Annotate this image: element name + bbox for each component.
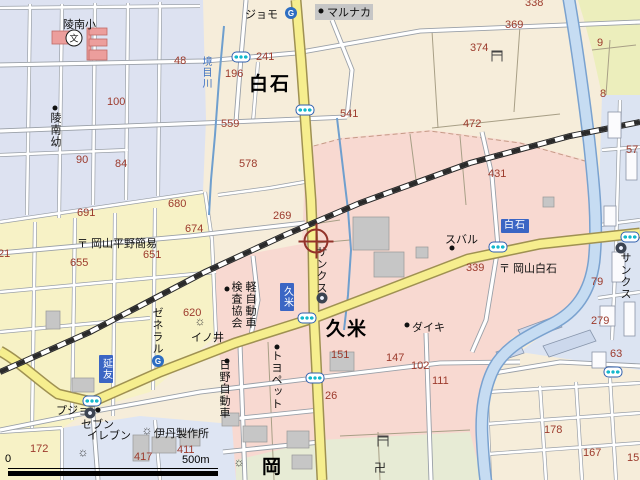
map-viewport[interactable]: 4810090842411965595413383693749847257691… (0, 0, 640, 480)
road-number-label: 655 (70, 257, 88, 269)
factory-icon: ☼ (232, 455, 246, 469)
traffic-signal-icon (232, 52, 251, 63)
road-number-label: 541 (340, 108, 358, 120)
road-number-label: 111 (432, 375, 449, 387)
map-cursor-icon (304, 229, 329, 254)
scale-bar (8, 471, 218, 476)
gas-station-icon: G (285, 7, 297, 19)
shrine-icon (492, 51, 503, 62)
scale-line (8, 468, 218, 469)
road-number-label: 167 (583, 447, 601, 459)
poi-label: ゼネラル (149, 307, 165, 355)
traffic-signal-icon (83, 396, 102, 407)
road-number-label: 674 (185, 223, 203, 235)
road-number-label: 57 (626, 144, 638, 156)
bus-stop-label: 延友 (99, 355, 113, 383)
road-number-label: 100 (107, 96, 125, 108)
poi-dot-icon (405, 323, 410, 328)
road-number-label: 339 (466, 262, 484, 274)
poi-label: ダイキ (412, 319, 445, 335)
poi-label: 日野自動車 (216, 359, 232, 419)
road-number-label: 559 (221, 118, 239, 130)
poi-dot-icon (319, 9, 324, 14)
road-number-label: 431 (488, 168, 506, 180)
traffic-signal-icon (604, 367, 623, 378)
poi-label: ジョモ (245, 6, 278, 22)
road-number-label: 374 (470, 42, 488, 54)
road-number-label: 26 (325, 390, 337, 402)
road-number-label: 269 (273, 210, 291, 222)
traffic-signal-icon (298, 313, 317, 324)
traffic-signal-icon (306, 373, 325, 384)
road-number-label: 578 (239, 158, 257, 170)
road-number-label: 417 (134, 451, 152, 463)
road-number-label: 21 (0, 248, 10, 260)
poi-label: サンクス (617, 252, 633, 300)
poi-label: 陵南幼 (47, 112, 63, 148)
district-label: 岡 (262, 452, 283, 479)
temple-icon: 卍 (373, 460, 387, 474)
road-number-label: 196 (225, 68, 243, 80)
district-label: 久米 (326, 314, 368, 341)
road-number-label: 8 (600, 88, 606, 100)
district-label: 白石 (249, 69, 291, 96)
poi-dot-icon (275, 345, 280, 350)
poi-label: マルナカ (315, 4, 373, 20)
road-number-label: 151 (331, 349, 349, 361)
road-number-label: 472 (463, 118, 481, 130)
poi-label: トヨペット (268, 350, 284, 410)
road-number-label: 680 (168, 198, 186, 210)
factory-icon: ☼ (76, 445, 90, 459)
factory-icon: ☼ (140, 423, 154, 437)
factory-icon: ☼ (193, 314, 207, 328)
school-icon: 文 (66, 30, 83, 47)
road-number-label: 15 (627, 452, 639, 464)
road-number-label: 241 (256, 51, 274, 63)
poi-label: 陵南小 (63, 16, 96, 32)
poi-dot-icon (96, 408, 101, 413)
poi-label: 〒 岡山平野簡易 (77, 235, 157, 251)
shrine-icon (378, 436, 389, 447)
river-label: 境目川 (198, 56, 213, 89)
gas-station-icon: G (152, 355, 164, 367)
poi-label: 軽自動車 (242, 281, 258, 329)
road-number-label: 338 (525, 0, 543, 9)
poi-label: 検査協会 (228, 281, 244, 329)
bus-stop-label: 久米 (280, 283, 294, 311)
poi-dot-icon (53, 106, 58, 111)
road-number-label: 90 (76, 154, 88, 166)
road-number-label: 172 (30, 443, 48, 455)
poi-dot-icon (450, 246, 455, 251)
road-number-label: 691 (77, 207, 95, 219)
poi-dot-icon (225, 287, 230, 292)
road-number-label: 9 (597, 37, 603, 49)
road-number-label: 178 (544, 424, 562, 436)
convenience-store-icon (317, 293, 328, 304)
poi-label: イレブン (87, 427, 131, 443)
road-number-label: 84 (115, 158, 127, 170)
scale-end-label: 500m (182, 454, 210, 466)
traffic-signal-icon (296, 105, 315, 116)
traffic-signal-icon (621, 232, 640, 243)
scale-start-label: 0 (5, 453, 11, 465)
poi-dot-icon (225, 359, 230, 364)
road-number-label: 102 (411, 360, 429, 372)
traffic-signal-icon (489, 242, 508, 253)
labels-layer: 4810090842411965595413383693749847257691… (0, 0, 640, 480)
poi-label: 伊丹製作所 (154, 425, 209, 441)
road-number-label: 79 (591, 276, 603, 288)
road-number-label: 279 (591, 315, 609, 327)
road-number-label: 48 (174, 55, 186, 67)
poi-label: イノ井 (191, 329, 224, 345)
road-number-label: 147 (386, 352, 404, 364)
convenience-store-icon (616, 243, 627, 254)
convenience-store-icon (85, 408, 96, 419)
poi-label: 〒 岡山白石 (499, 260, 557, 276)
poi-label: スバル (445, 231, 478, 247)
road-number-label: 369 (505, 19, 523, 31)
road-number-label: 63 (610, 348, 622, 360)
bus-stop-label: 白石 (501, 219, 529, 233)
